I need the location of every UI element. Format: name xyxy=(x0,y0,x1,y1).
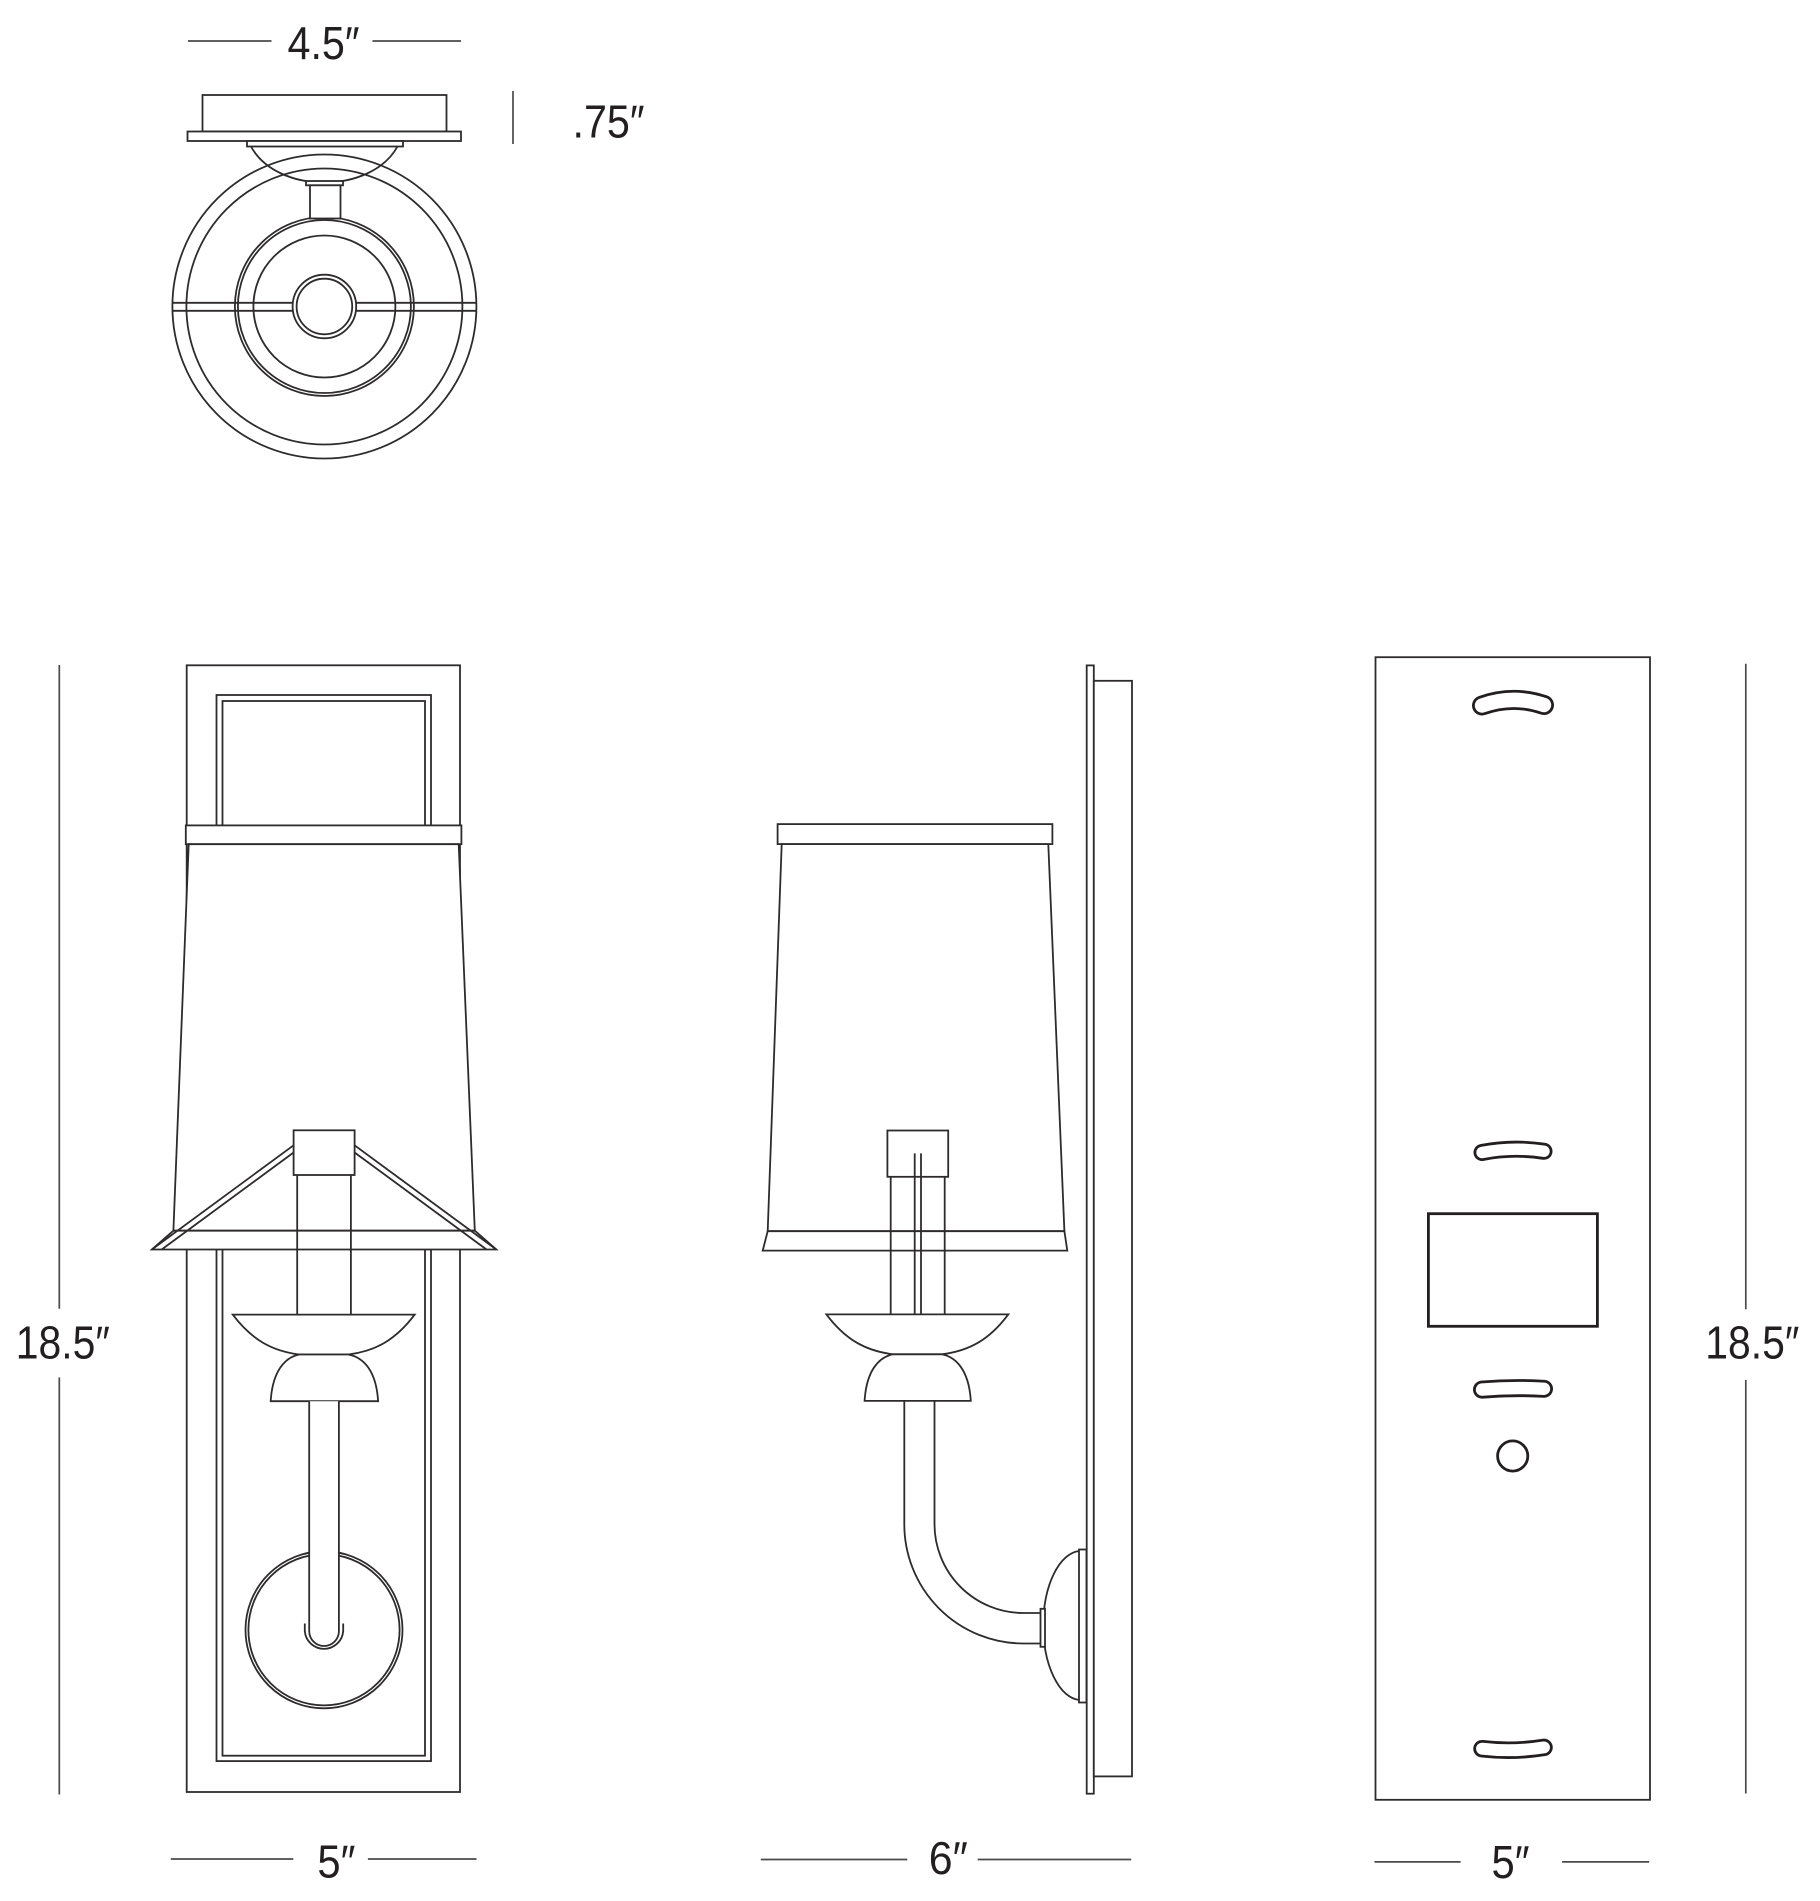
svg-text:5″: 5″ xyxy=(1492,1836,1530,1888)
svg-text:18.5″: 18.5″ xyxy=(1705,1317,1799,1369)
svg-text:18.5″: 18.5″ xyxy=(16,1317,110,1369)
svg-text:.75″: .75″ xyxy=(573,96,645,148)
svg-text:4.5″: 4.5″ xyxy=(288,17,360,69)
svg-text:5″: 5″ xyxy=(317,1836,355,1888)
svg-text:6″: 6″ xyxy=(929,1832,968,1884)
